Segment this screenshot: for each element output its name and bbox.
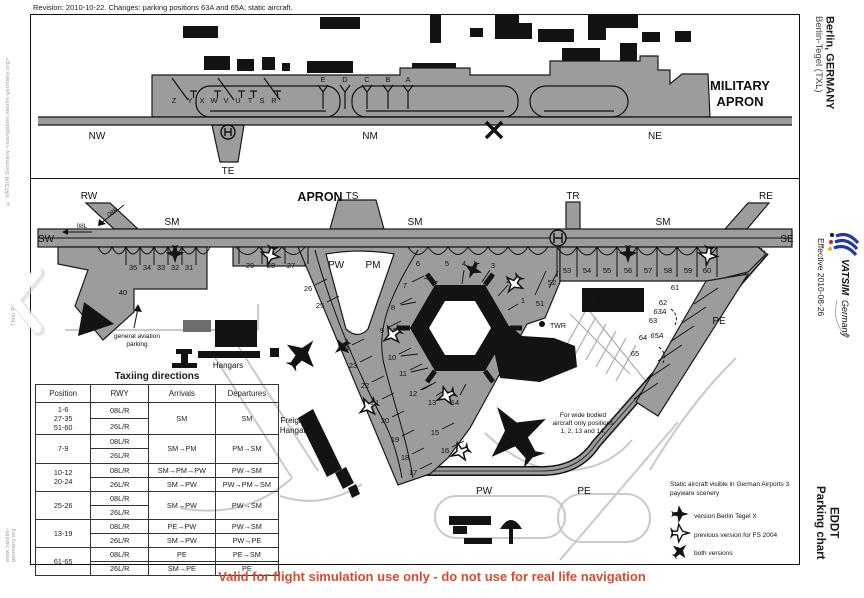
arr-cell: PE→PW xyxy=(149,519,216,533)
taxiway-rw-label: RW xyxy=(81,191,98,202)
stand-4: 4 xyxy=(462,259,466,268)
stand-59: 59 xyxy=(684,266,692,275)
taxiway-sw-label: SW xyxy=(38,234,55,245)
table-row: 1-627-3551-60 08L/R SM SM xyxy=(36,403,279,419)
tower-dot-icon xyxy=(539,321,545,327)
col-arrivals: Arrivals xyxy=(149,385,216,403)
stand-55: 55 xyxy=(603,266,611,275)
mil-stand-a: A xyxy=(405,75,410,84)
stand-57: 57 xyxy=(644,266,652,275)
taxiway-pw-label: PW xyxy=(328,260,345,271)
stand-58: 58 xyxy=(664,266,672,275)
stand-61: 61 xyxy=(671,283,679,292)
taxiway-sm1-label: SM xyxy=(165,217,180,228)
stand-33: 33 xyxy=(157,263,165,272)
ga-note-arrowhead xyxy=(134,304,142,312)
chart-name: EDDT Parking chart xyxy=(812,468,840,578)
taxiway-pw2-label: PW xyxy=(476,486,493,497)
mil-stand-v: V xyxy=(223,96,228,105)
south-buildings xyxy=(449,516,492,544)
stand-22: 22 xyxy=(361,381,369,390)
pos-cell: 1-6 xyxy=(37,405,89,414)
stand-3: 3 xyxy=(491,261,495,270)
taxiway-re-label: RE xyxy=(759,191,773,202)
arr-cell: SM→PW xyxy=(149,534,216,548)
taxiway-se-label: SE xyxy=(780,234,794,245)
stands-61-65-strip xyxy=(636,274,748,416)
table-row: 61-65 08L/R PE PE→SM xyxy=(36,548,279,562)
terminal-connector-building xyxy=(490,326,577,382)
stand-5: 5 xyxy=(445,259,449,268)
chevron-left-icon xyxy=(14,272,37,328)
arr-cell: SM→PW xyxy=(149,477,216,491)
hatched-area xyxy=(566,302,648,384)
stand-9: 9 xyxy=(380,326,384,335)
simulation-warning: Valid for flight simulation use only - d… xyxy=(0,569,864,584)
stand-13: 13 xyxy=(428,398,436,407)
rwy-cell: 08L/R xyxy=(91,519,149,533)
stand-21: 21 xyxy=(371,398,379,407)
effective-date: Effective 2010-08-26 xyxy=(816,238,826,316)
col-position: Position xyxy=(36,385,91,403)
stand-24: 24 xyxy=(341,344,349,353)
taxiway-pm-label: PM xyxy=(366,260,381,271)
dep-cell: PE→SM xyxy=(215,548,278,562)
military-apron-title-1: MILITARY xyxy=(710,78,770,93)
mil-stand-d: D xyxy=(342,75,348,84)
rwy-08l-label: 08L xyxy=(77,223,88,230)
stand-65a: 65A xyxy=(650,331,663,340)
stand-11: 11 xyxy=(399,369,407,378)
rwy-cell: 26L/R xyxy=(91,505,149,519)
legend-plane-outline-icon xyxy=(671,524,688,542)
mil-stand-x: X xyxy=(199,96,204,105)
widebody-note-1: For wide bodied xyxy=(560,412,607,419)
stand-1: 1 xyxy=(521,296,525,305)
stand-12: 12 xyxy=(409,389,417,398)
legend-plane-both-icon xyxy=(668,539,693,564)
legend-intro-2: payware scenery xyxy=(670,490,720,497)
dep-cell: PW→SM xyxy=(215,519,278,533)
static-aircraft-legend: Static aircraft visible in German Airpor… xyxy=(668,481,790,563)
airport-name: Berlin-Tegel (TXL) xyxy=(812,16,823,110)
stand-27: 27 xyxy=(287,261,295,270)
aircraft-silhouette-icon xyxy=(277,329,326,378)
copyright-vertical: © VATSIM Germany <navigation.vatsim-germ… xyxy=(5,36,11,206)
stand-26: 26 xyxy=(304,284,312,293)
taxiway-tr-stub xyxy=(566,202,580,229)
chart-code: EDDT xyxy=(826,468,840,578)
mil-stand-r: R xyxy=(271,96,277,105)
stand-32: 32 xyxy=(171,263,179,272)
stand-23: 23 xyxy=(349,361,357,370)
stand-34: 34 xyxy=(143,263,151,272)
stand-62: 62 xyxy=(659,298,667,307)
arr-cell: SM xyxy=(149,403,216,435)
taxiing-directions-table: Taxiing directions Position RWY Arrivals… xyxy=(35,371,279,576)
stand-6: 6 xyxy=(416,259,420,268)
taxiway-pe1-label: PE xyxy=(712,316,726,327)
legend-item-2: previous version for FS 2004 xyxy=(694,532,777,539)
region-name: Berlin, GERMANY xyxy=(823,16,836,110)
stand-52: 52 xyxy=(548,278,556,287)
stand-56: 56 xyxy=(624,266,632,275)
revision-note: Revision: 2010-10-22. Changes: parking p… xyxy=(33,3,293,12)
military-apron-title-2: APRON xyxy=(717,94,764,109)
tower-label: TWR xyxy=(550,323,566,330)
mil-stand-y: Y xyxy=(187,96,192,105)
taxiway-nw-label: NW xyxy=(89,131,106,142)
dep-cell: PW→PM→SM xyxy=(215,477,278,491)
stand-2: 2 xyxy=(506,276,510,285)
rwy-cell: 26L/R xyxy=(91,449,149,463)
stand-65: 65 xyxy=(631,349,639,358)
mil-stand-c: C xyxy=(364,75,370,84)
mil-stand-z: Z xyxy=(172,96,177,105)
stand-16: 16 xyxy=(441,446,449,455)
stand-64: 64 xyxy=(639,333,647,342)
table-title: Taxiing directions xyxy=(35,371,279,382)
stand-53: 53 xyxy=(563,266,571,275)
stand-7: 7 xyxy=(403,281,407,290)
taxiway-ts-label: TS xyxy=(346,191,359,202)
widebody-note-3: 1, 2, 13 and 14. xyxy=(560,428,605,435)
hangars-label: Hangars xyxy=(213,361,243,370)
carousel-prev-button[interactable] xyxy=(2,262,48,338)
mil-stand-e: E xyxy=(320,75,325,84)
legend-item-3: both versions xyxy=(694,550,733,557)
pos-cell: 61-65 xyxy=(37,557,89,566)
freight-label-1: Freight xyxy=(281,416,307,425)
dep-cell: PM→SM xyxy=(215,435,278,463)
mil-stand-w: W xyxy=(210,96,218,105)
rwy-cell: 08L/R xyxy=(91,548,149,562)
rwy-cell: 08L/R xyxy=(91,403,149,419)
rwy-cell: 26L/R xyxy=(91,477,149,491)
widebody-note-2: aircraft only positions xyxy=(552,420,614,427)
stand-54: 54 xyxy=(583,266,591,275)
stand-8: 8 xyxy=(391,303,395,312)
arr-cell: PE xyxy=(149,548,216,562)
dep-cell: PW→PE xyxy=(215,534,278,548)
stand-60: 60 xyxy=(703,266,711,275)
legend-intro-1: Static aircraft visible in German Airpor… xyxy=(670,481,790,488)
vatsim-germany-logo: VATSIM Germany xyxy=(828,228,862,346)
military-apron-surface xyxy=(38,56,792,162)
chart-type: Parking chart xyxy=(812,468,826,578)
rwy-cell: 26L/R xyxy=(91,534,149,548)
stand-51: 51 xyxy=(536,299,544,308)
table-row: 7-9 08L/R SM→PM PM→SM xyxy=(36,435,279,449)
stand-63a: 63A xyxy=(653,307,666,316)
taxiway-te-label: TE xyxy=(222,166,235,177)
pos-cell: 7-9 xyxy=(37,444,89,453)
pos-cell: 20-24 xyxy=(37,477,89,486)
ga-parking-note-1: general aviation xyxy=(114,333,160,340)
stand-63: 63 xyxy=(649,316,657,325)
stand-14: 14 xyxy=(451,398,459,407)
mil-stand-t: T xyxy=(248,96,253,105)
table-header-row: Position RWY Arrivals Departures xyxy=(36,385,279,403)
website-vertical: www.vatsim-germany.org xyxy=(5,496,17,562)
stand-31: 31 xyxy=(185,263,193,272)
rwy-cell: 08L/R xyxy=(91,491,149,505)
dep-cell: SM xyxy=(215,403,278,435)
col-departures: Departures xyxy=(215,385,278,403)
taxiway-ts-stub xyxy=(330,200,384,229)
taxiway-ne-label: NE xyxy=(648,131,662,142)
arr-cell: SM→PW xyxy=(149,491,216,519)
rwy-cell: 08L/R xyxy=(91,435,149,449)
mil-stand-u: U xyxy=(235,96,240,105)
pos-cell: 10-12 xyxy=(37,468,89,477)
taxiway-nm-label: NM xyxy=(362,131,378,142)
stand-20: 20 xyxy=(381,416,389,425)
stand-28: 28 xyxy=(267,261,275,270)
table-row: 25-26 08L/R SM→PW PW→SM xyxy=(36,491,279,505)
stand-10: 10 xyxy=(388,353,396,362)
logo-suffix-text: Germany xyxy=(840,300,850,338)
mil-stand-s: S xyxy=(259,96,264,105)
stand-35: 35 xyxy=(129,263,137,272)
mil-stand-b: B xyxy=(385,75,390,84)
stand-25: 25 xyxy=(316,301,324,310)
arr-cell: SM→PM xyxy=(149,435,216,463)
taxiway-re-stub xyxy=(725,203,769,229)
arr-cell: SM→PM→PW xyxy=(149,463,216,477)
stand-40: 40 xyxy=(119,288,127,297)
pos-cell: 13-19 xyxy=(37,529,89,538)
pos-cell: 25-26 xyxy=(37,501,89,510)
taxiway-sm2-label: SM xyxy=(408,217,423,228)
pos-cell: 51-60 xyxy=(37,423,89,432)
military-apron-map: Z Y X W V U T S R E D C B A NW NM NE TE … xyxy=(30,14,800,178)
rwy-cell: 26L/R xyxy=(91,419,149,435)
col-rwy: RWY xyxy=(91,385,149,403)
table-row: 13-19 08L/R PE→PW PW→SM xyxy=(36,519,279,533)
stand-19: 19 xyxy=(391,435,399,444)
stand-15: 15 xyxy=(431,428,439,437)
apron-title: APRON xyxy=(297,190,342,204)
pos-cell: 27-35 xyxy=(37,414,89,423)
stand-29: 29 xyxy=(246,261,254,270)
chart-region-title: Berlin, GERMANY Berlin-Tegel (TXL) xyxy=(812,16,836,110)
freight-label-2: Hangar xyxy=(280,426,307,435)
taxiway-tr-label: TR xyxy=(566,191,579,202)
junction-h-icon xyxy=(550,230,566,246)
legend-plane-filled-icon xyxy=(671,505,688,523)
terminal-c-label: Terminal C xyxy=(595,296,631,305)
rwy-cell: 08L/R xyxy=(91,463,149,477)
taxiway-sm3-label: SM xyxy=(656,217,671,228)
stand-17: 17 xyxy=(409,468,417,477)
taxiway-pe2-label: PE xyxy=(577,486,591,497)
ga-parking-note-2: parking xyxy=(126,341,148,348)
dep-cell: PW→SM xyxy=(215,463,278,477)
helipad-h-icon xyxy=(221,125,235,139)
stand-18: 18 xyxy=(401,453,409,462)
logo-brand-text: VATSIM xyxy=(839,259,850,296)
legend-item-1: version Berlin Tegel X xyxy=(694,513,757,520)
water-tower-icon xyxy=(500,520,522,544)
dep-cell: PW→SM xyxy=(215,491,278,519)
table-row: 10-1220-24 08L/R SM→PM→PW PW→SM xyxy=(36,463,279,477)
